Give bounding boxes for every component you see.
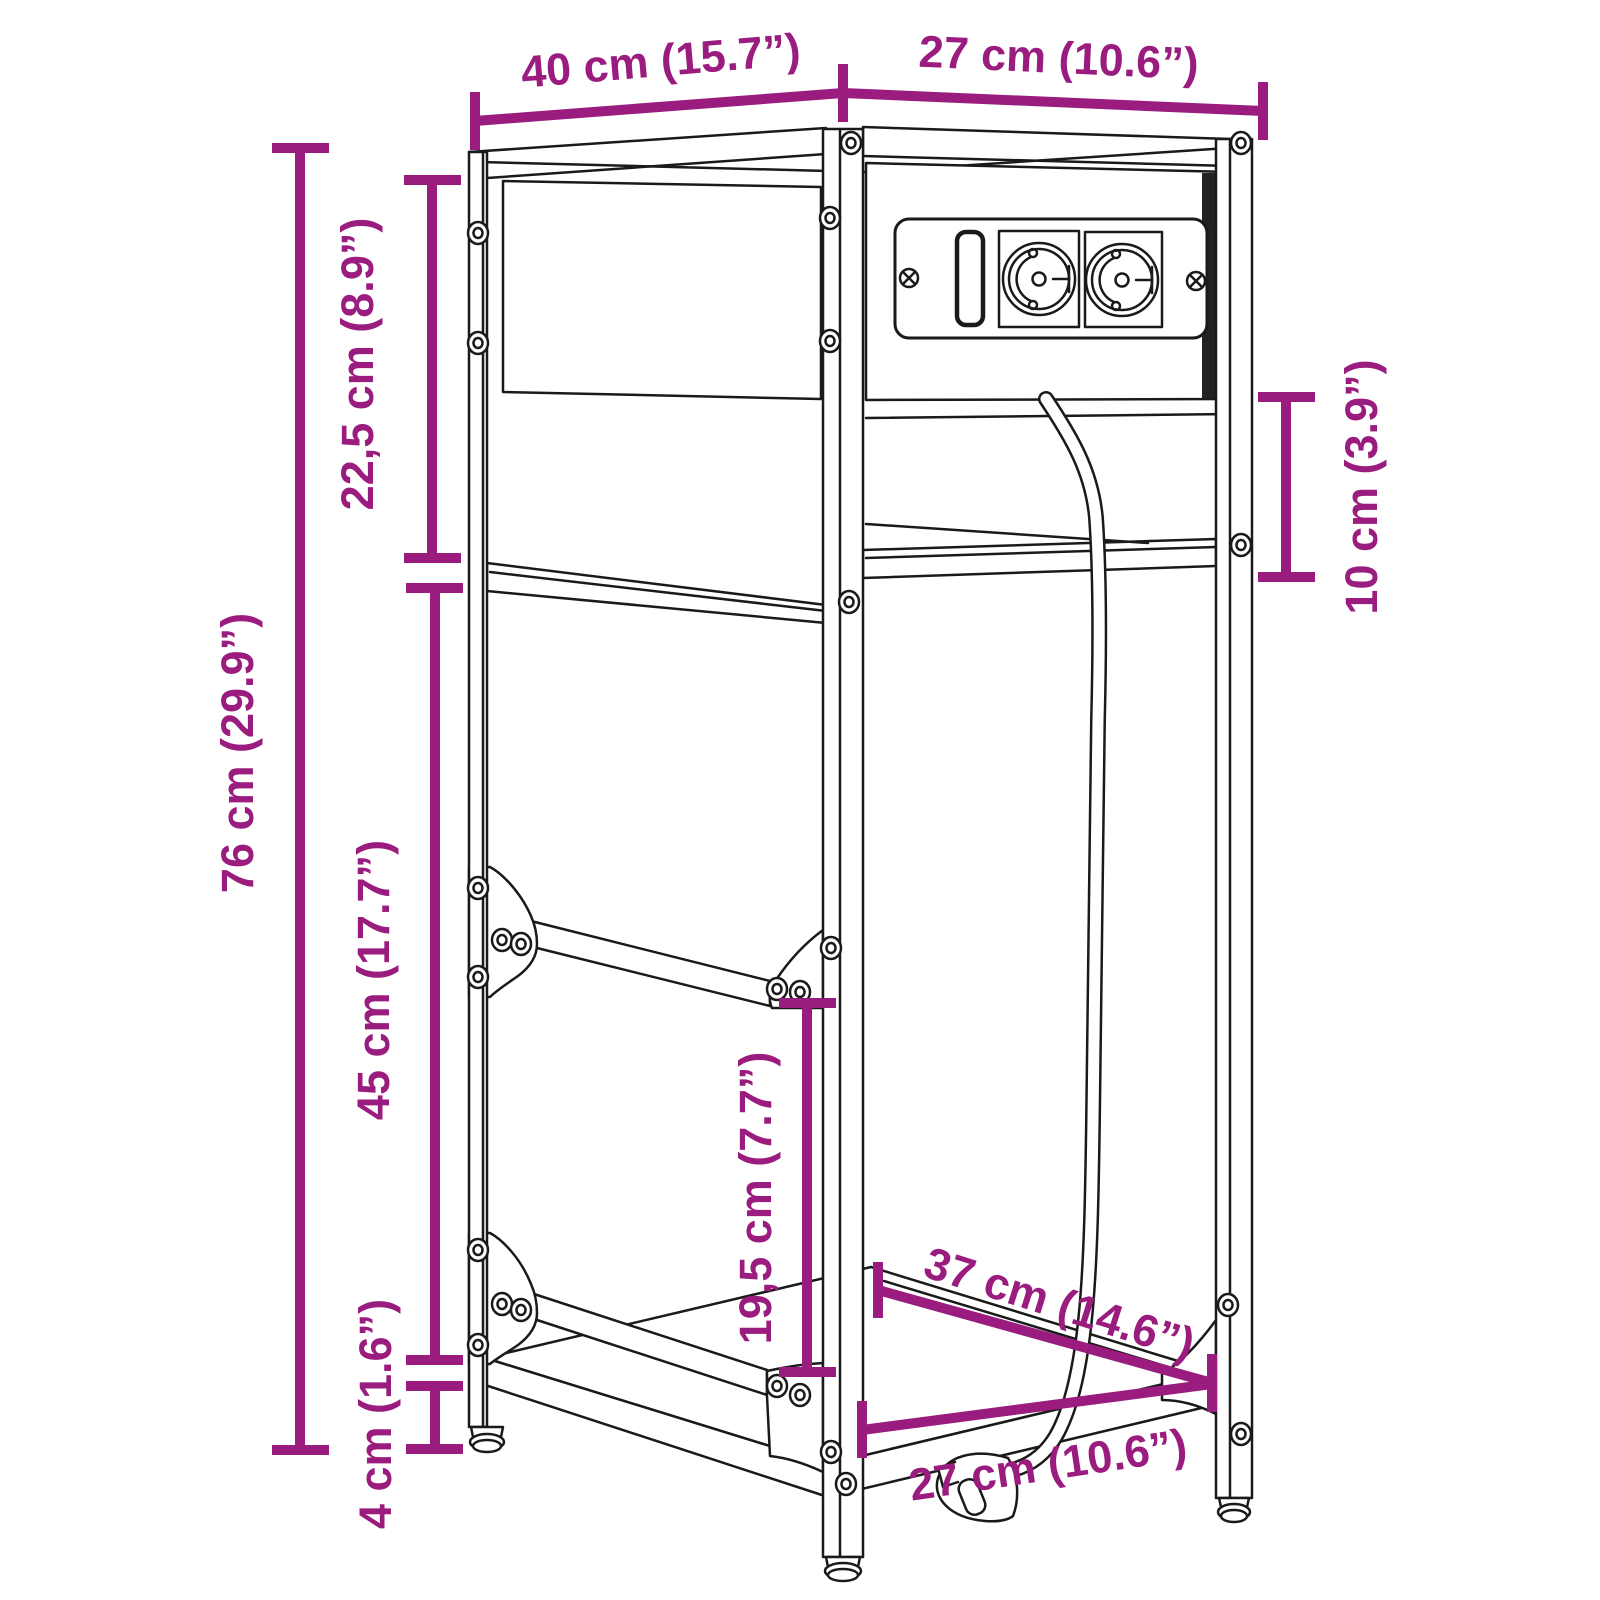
dimension-label-foot-height: 4 cm (1.6”): [350, 1299, 401, 1529]
socket-panel: [895, 219, 1207, 338]
dimension-label-middle-compartment: 45 cm (17.7”): [348, 840, 399, 1120]
dim-upper-compartment-line: [404, 180, 461, 558]
dimension-label-socket-clearance: 10 cm (3.9”): [1336, 359, 1387, 614]
dimension-label-bottom-clearance: 19,5 cm (7.7”): [730, 1052, 781, 1345]
dimension-label-top-width: 40 cm (15.7”): [519, 23, 802, 97]
diagram-canvas: 40 cm (15.7”) 27 cm (10.6”) 22,5 cm (8.9…: [0, 0, 1600, 1600]
dimension-label-top-depth: 27 cm (10.6”): [918, 26, 1200, 90]
dimension-label-total-height: 76 cm (29.9”): [212, 613, 263, 893]
dim-socket-clearance-line: [1258, 397, 1315, 577]
schuko-socket-icon-1: [999, 231, 1079, 327]
dim-middle-compartment-line: [406, 588, 463, 1360]
right-post: [1216, 139, 1252, 1498]
dimension-diagram: 40 cm (15.7”) 27 cm (10.6”) 22,5 cm (8.9…: [0, 0, 1600, 1600]
dim-foot-height-line: [406, 1386, 463, 1449]
dim-total-height-line: [272, 148, 329, 1450]
dimension-label-upper-compartment: 22,5 cm (8.9”): [332, 218, 383, 511]
schuko-socket-icon-2: [1085, 232, 1162, 327]
